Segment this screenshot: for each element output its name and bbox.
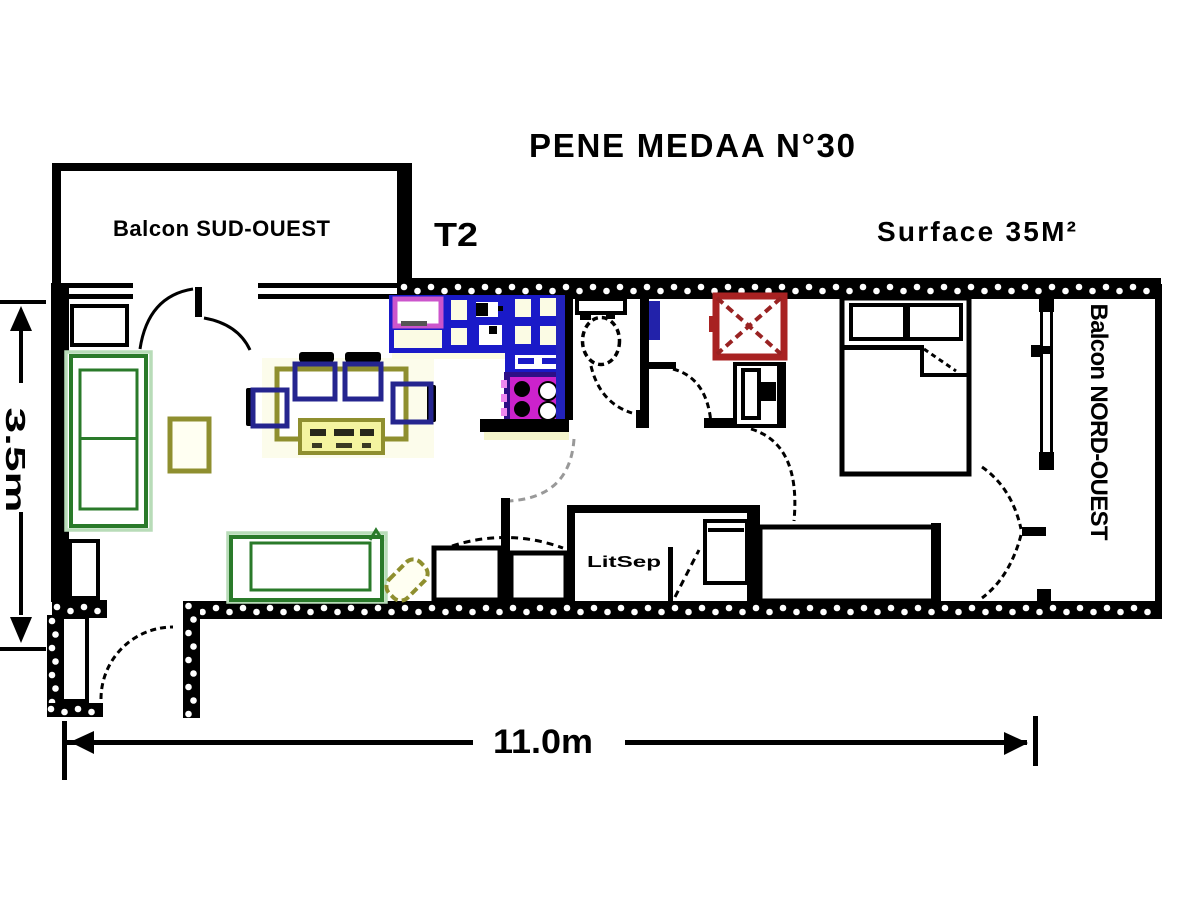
svg-text:11.0m: 11.0m — [493, 723, 593, 761]
svg-text:Balcon NORD-OUEST: Balcon NORD-OUEST — [1085, 304, 1112, 541]
svg-text:Surface 35M²: Surface 35M² — [877, 216, 1076, 247]
svg-text:LitSep: LitSep — [587, 554, 661, 571]
svg-text:3.5m: 3.5m — [0, 408, 31, 513]
svg-text:Balcon SUD-OUEST: Balcon SUD-OUEST — [113, 216, 331, 241]
svg-text:T2: T2 — [434, 216, 478, 253]
svg-text:PENE MEDAA N°30: PENE MEDAA N°30 — [529, 127, 855, 164]
